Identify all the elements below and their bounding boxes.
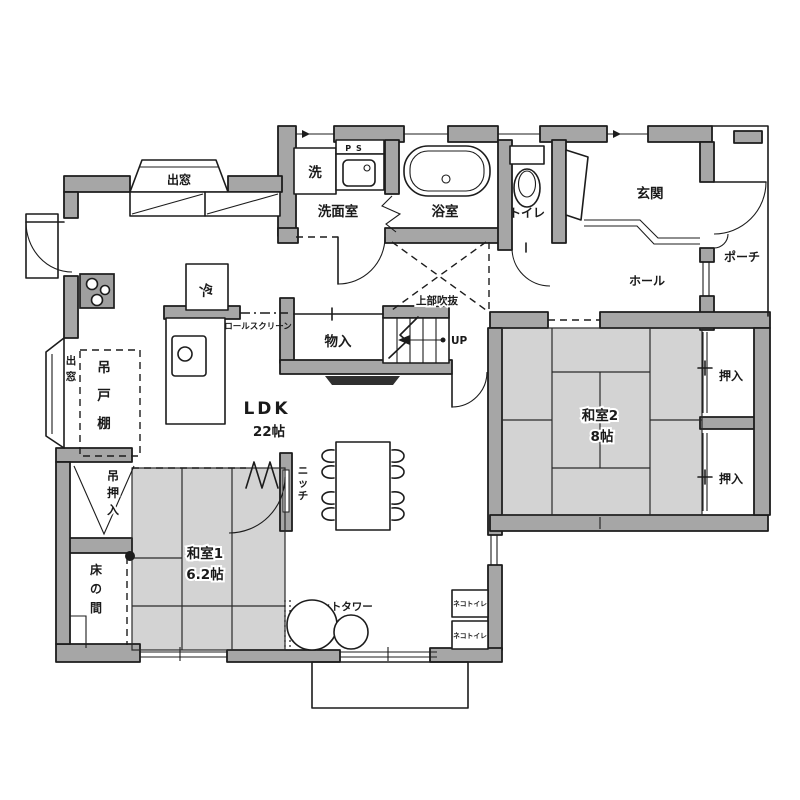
dining-table-icon [336,442,390,530]
washitsu1-size: 6.2帖 [186,566,224,583]
hanging-closet: 吊押入 [74,466,134,534]
washitsu2-label: 和室2 [582,407,618,424]
ldk-label: LDK [243,399,290,419]
porch-outline [712,126,768,316]
hall-ldk-door [452,372,487,407]
shoe-cabinet-icon [566,150,588,220]
bay-window-left-label: 出窓 [66,354,77,383]
washitsu2-size: 8帖 [591,428,614,445]
niche-label: ニッチ [298,465,309,502]
entrance-door-arc [714,182,766,234]
chair-icon [322,450,334,478]
roll-screen-label: ロールスクリーン [224,321,292,332]
toilet-room: トイレ [509,146,550,286]
washroom-label: 洗面室 [318,203,359,220]
bay-window-left: 出窓 [46,338,77,448]
cat-toilet-label: ネコトイレ [453,632,487,640]
cat-toilet-label: ネコトイレ [453,600,487,608]
pipe-space-label: PS [345,144,367,153]
deck [312,662,468,708]
genkan-step [584,220,700,238]
tokonoma-post-icon [125,551,135,561]
porch-label: ポーチ [724,249,760,264]
hanging-cabinet-label: 吊戸棚 [97,360,111,432]
bathroom: 浴室 [404,146,490,220]
bay-window-top-label: 出窓 [167,172,191,187]
stairs: UP [383,317,468,363]
oshiire-upper-label: 押入 [719,368,743,383]
chair-icon [322,492,334,520]
back-door [26,214,72,278]
chair-icon [392,492,404,520]
bathroom-label: 浴室 [432,203,459,220]
toilet-fixture-icon [514,169,540,207]
chair-icon [392,450,404,478]
stairs-up-label: UP [451,335,468,347]
void-above: 上部吹抜 [392,242,489,310]
washroom: 洗 PS 洗面室 [294,140,400,284]
ldk-size: 22帖 [253,423,286,440]
cat-corner: キャットタワー ネコトイレ ネコトイレ [287,590,488,650]
window-arrow-icon [302,130,310,138]
floor-plan-drawing: 出窓 出窓 冷 吊戸棚 ロールスクリーン 洗 PS [0,0,800,800]
tokonoma-label: 床の間 [90,562,103,615]
washer-label: 洗 [308,164,322,181]
void-above-label: 上部吹抜 [416,294,458,307]
tv-board-icon [325,376,400,385]
sink-icon [172,336,206,376]
monoire-label: 物入 [325,333,352,350]
genkan-label: 玄関 [637,185,664,202]
cat-tower-icon [334,615,368,649]
tokonoma: 床の間 [70,551,135,648]
cat-tower-icon [287,600,337,650]
hall-label: ホール [629,274,665,288]
genkan: 玄関 [566,150,766,248]
hanging-closet-label: 吊押入 [107,469,119,517]
bath-folding-door [382,196,400,232]
toilet-tank [510,146,544,164]
oshiire-lower-label: 押入 [719,471,743,486]
bay-window-top: 出窓 [130,160,228,192]
washitsu1-label: 和室1 [187,545,223,562]
vanity-basin-icon [343,160,375,186]
bathtub-icon [404,146,490,196]
storage-monoire: 物入 [294,308,383,350]
toilet-label: トイレ [509,206,545,220]
porch: ポーチ [712,126,768,316]
window-arrow-icon [613,130,621,138]
floor-plan: 出窓 出窓 冷 吊戸棚 ロールスクリーン 洗 PS [0,0,800,800]
